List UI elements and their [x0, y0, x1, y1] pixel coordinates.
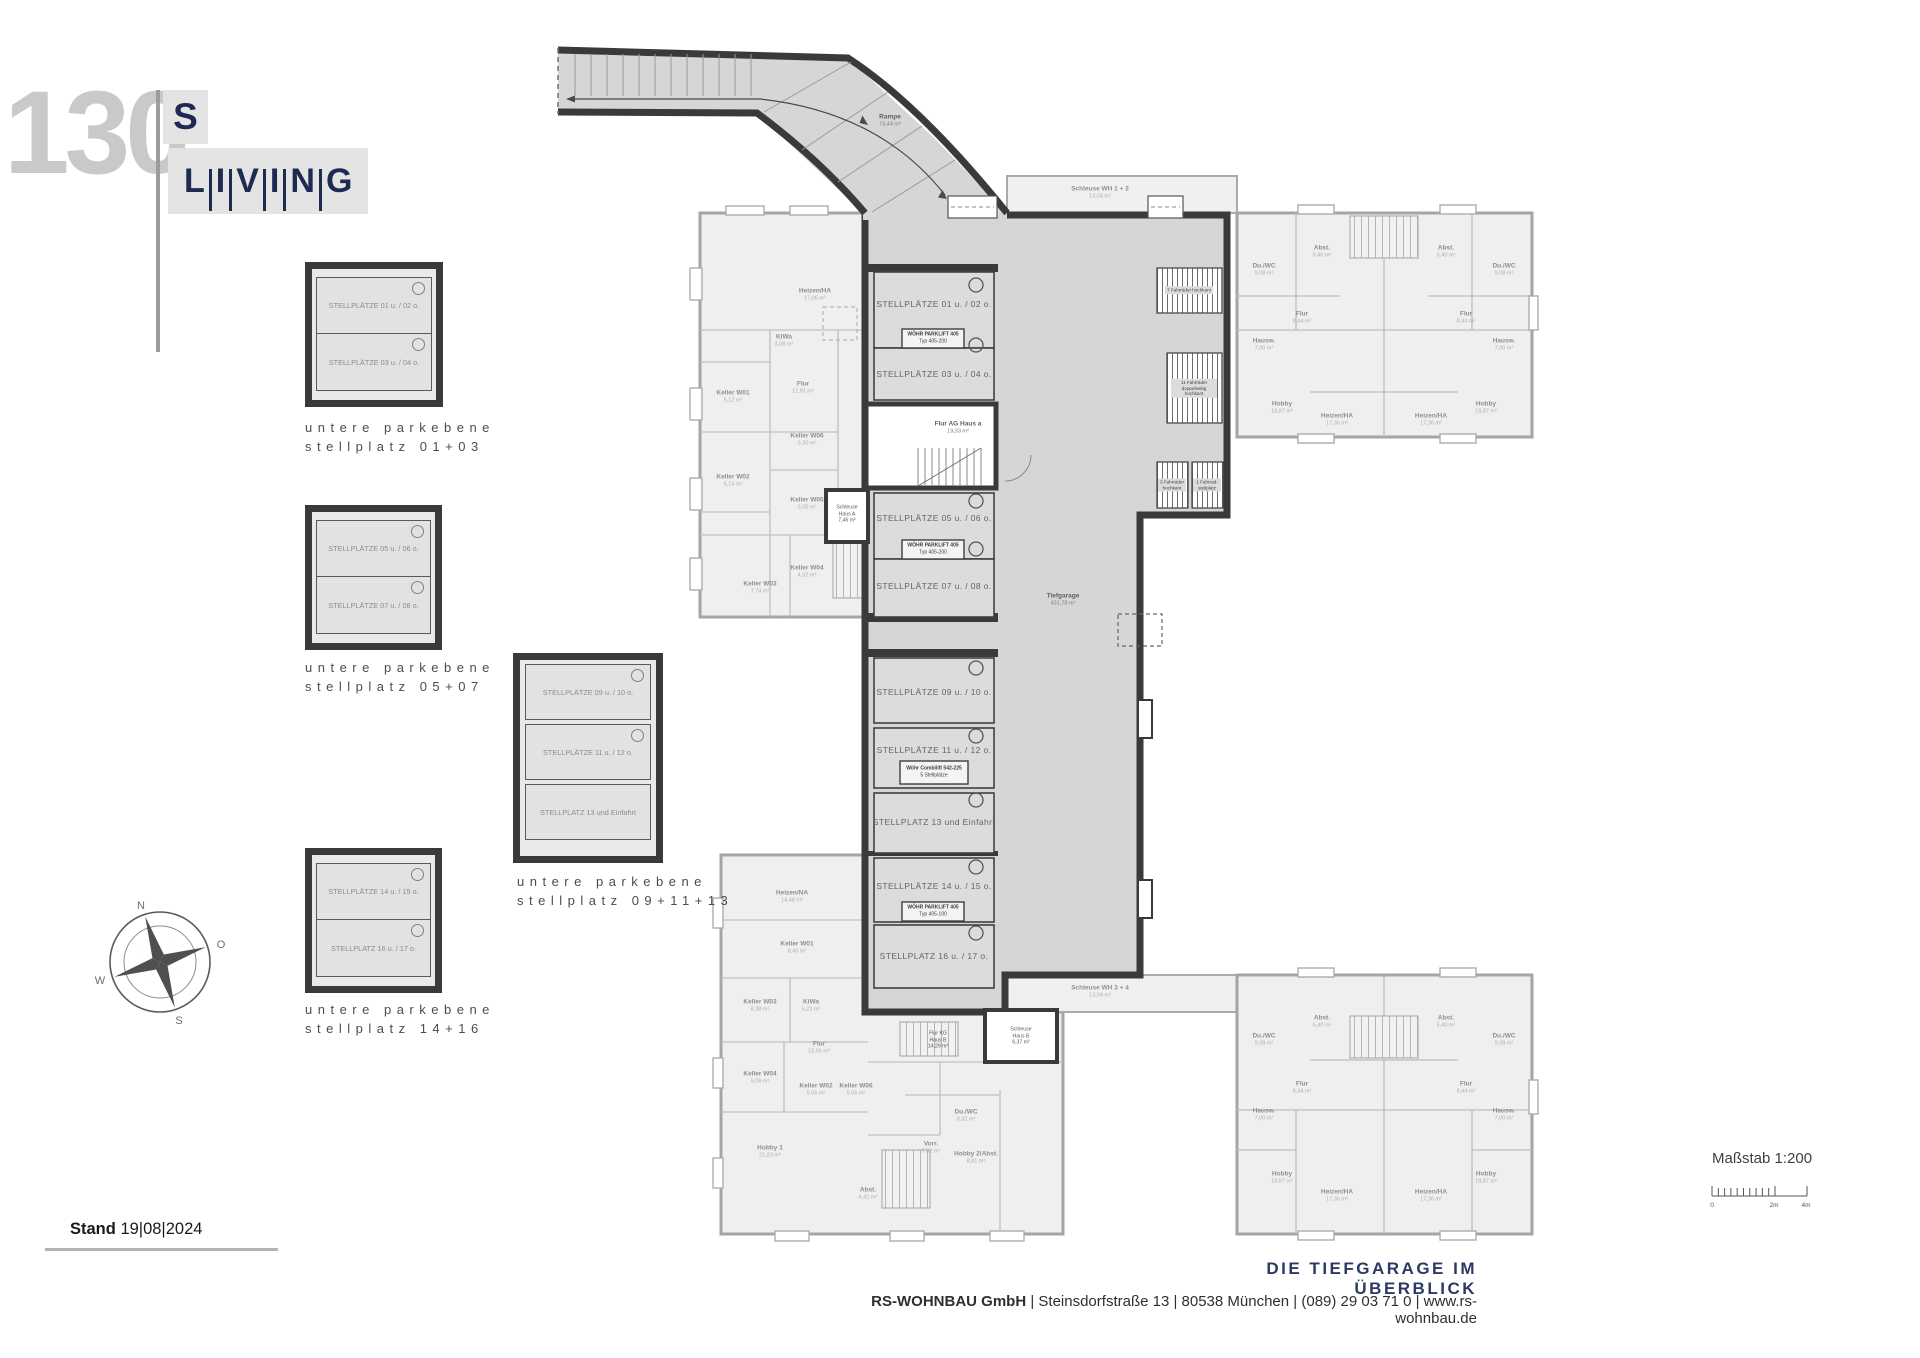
building-wh-bottom — [1237, 975, 1532, 1234]
logo-letter: L — [180, 162, 209, 201]
inset-stellplatz-09-11-13: STELLPLÄTZE 09 u. / 10 o. STELLPLÄTZE 11… — [513, 653, 663, 863]
inset-caption-09-11-13: untere parkebenestellplatz 09+11+13 — [517, 872, 733, 910]
inset-cell-label: STELLPLÄTZE 14 u. / 15 o. — [328, 887, 418, 896]
inset-cell: STELLPLÄTZE 09 u. / 10 o. — [525, 664, 651, 720]
logo-living-box: LIVING — [168, 148, 368, 214]
inset-cell-label: STELLPLÄTZE 03 u. / 04 o. — [329, 358, 419, 367]
floor-plan-page: N O W S 0 2m 4m STELLPLÄTZE 01 u. / 02 o… — [0, 0, 1920, 1358]
stand-value: 19|08|2024 — [120, 1220, 202, 1238]
stall-number-circle-icon — [411, 924, 424, 937]
inset-cell: STELLPLÄTZE 01 u. / 02 o. — [316, 277, 432, 334]
stall-number-circle-icon — [411, 525, 424, 538]
logo-s-box: S — [163, 90, 208, 144]
stall-number-circle-icon — [412, 338, 425, 351]
scale-label: Maßstab 1:200 — [1712, 1150, 1812, 1167]
scale-tick-2m: 2m — [1769, 1202, 1778, 1209]
footer-address: RS-WOHNBAU GmbH | Steinsdorfstraße 13 | … — [830, 1293, 1477, 1327]
compass-east-label: O — [217, 939, 226, 951]
footer-contact: | Steinsdorfstraße 13 | 80538 München | … — [1026, 1293, 1477, 1327]
caption-line: untere parkebene — [517, 872, 733, 891]
compass-west-label: W — [95, 975, 106, 987]
vestibule-wh34 — [1007, 975, 1237, 1012]
inset-stellplatz-14-16: STELLPLÄTZE 14 u. / 15 o. STELLPLATZ 16 … — [305, 848, 442, 993]
caption-line: untere parkebene — [305, 1000, 495, 1019]
stall-number-circle-icon — [411, 581, 424, 594]
inset-cell-label: STELLPLÄTZE 09 u. / 10 o. — [543, 688, 633, 697]
inset-cell-label: STELLPLATZ 13 und Einfahrt — [540, 808, 636, 817]
logo-letter: I — [212, 162, 229, 201]
compass-icon: N O W S — [95, 900, 226, 1027]
building-wh-top — [1237, 213, 1532, 437]
compass-south-label: S — [175, 1015, 182, 1027]
logo-letter-bar — [283, 169, 286, 211]
inset-cell: STELLPLÄTZE 11 u. / 12 o. — [525, 724, 651, 780]
stall-number-circle-icon — [631, 729, 644, 742]
logo-letter: I — [266, 162, 283, 201]
caption-line: stellplatz 14+16 — [305, 1019, 495, 1038]
scale-tick-0: 0 — [1710, 1202, 1714, 1209]
stall-number-circle-icon — [412, 282, 425, 295]
inset-cell: STELLPLÄTZE 14 u. / 15 o. — [316, 863, 431, 920]
inset-stellplatz-05-07: STELLPLÄTZE 05 u. / 06 o. STELLPLÄTZE 07… — [305, 505, 442, 650]
logo-letter-bar — [319, 169, 322, 211]
inset-cell-label: STELLPLÄTZE 01 u. / 02 o. — [329, 301, 419, 310]
caption-line: untere parkebene — [305, 658, 495, 677]
stall-number-circle-icon — [631, 669, 644, 682]
inset-cell: STELLPLÄTZE 03 u. / 04 o. — [316, 334, 432, 391]
ramp — [558, 48, 1007, 220]
inset-cell-label: STELLPLÄTZE 07 u. / 08 o. — [328, 601, 418, 610]
logo-letter: V — [232, 162, 263, 201]
haus-a-outline — [700, 213, 865, 617]
inset-cell: STELLPLÄTZE 07 u. / 08 o. — [316, 577, 431, 634]
stand-date: Stand 19|08|2024 — [70, 1220, 202, 1239]
inset-stellplatz-01-03: STELLPLÄTZE 01 u. / 02 o. STELLPLÄTZE 03… — [305, 262, 443, 407]
stall-number-circle-icon — [411, 868, 424, 881]
stand-underline — [45, 1248, 278, 1251]
inset-cell-label: STELLPLATZ 16 u. / 17 o. — [331, 944, 416, 953]
inset-caption-01-03: untere parkebenestellplatz 01+03 — [305, 418, 495, 456]
inset-cell: STELLPLATZ 13 und Einfahrt — [525, 784, 651, 840]
logo-letter: N — [286, 162, 319, 201]
scale-bar: 0 2m 4m — [1710, 1186, 1810, 1209]
scale-tick-4m: 4m — [1801, 1202, 1810, 1209]
logo-divider-line — [156, 90, 160, 352]
inset-cell: STELLPLATZ 16 u. / 17 o. — [316, 920, 431, 977]
caption-line: untere parkebene — [305, 418, 495, 437]
logo-letter: G — [322, 162, 356, 201]
footer-company: RS-WOHNBAU GmbH — [871, 1293, 1026, 1310]
logo-letter-bar — [229, 169, 232, 211]
caption-line: stellplatz 05+07 — [305, 677, 495, 696]
inset-caption-05-07: untere parkebenestellplatz 05+07 — [305, 658, 495, 696]
logo-letter-bar — [263, 169, 266, 211]
stand-label: Stand — [70, 1220, 116, 1238]
inset-cell-label: STELLPLÄTZE 05 u. / 06 o. — [328, 544, 418, 553]
logo-letter-bar — [209, 169, 212, 211]
inset-cell: STELLPLÄTZE 05 u. / 06 o. — [316, 520, 431, 577]
inset-caption-14-16: untere parkebenestellplatz 14+16 — [305, 1000, 495, 1038]
caption-line: stellplatz 09+11+13 — [517, 891, 733, 910]
schleuse-haus-a-room — [826, 490, 868, 542]
compass-north-label: N — [137, 900, 145, 912]
inset-cell-label: STELLPLÄTZE 11 u. / 12 o. — [543, 748, 633, 757]
schleuse-haus-b-room — [985, 1010, 1057, 1062]
caption-line: stellplatz 01+03 — [305, 437, 495, 456]
vestibule-wh12 — [1007, 176, 1237, 213]
